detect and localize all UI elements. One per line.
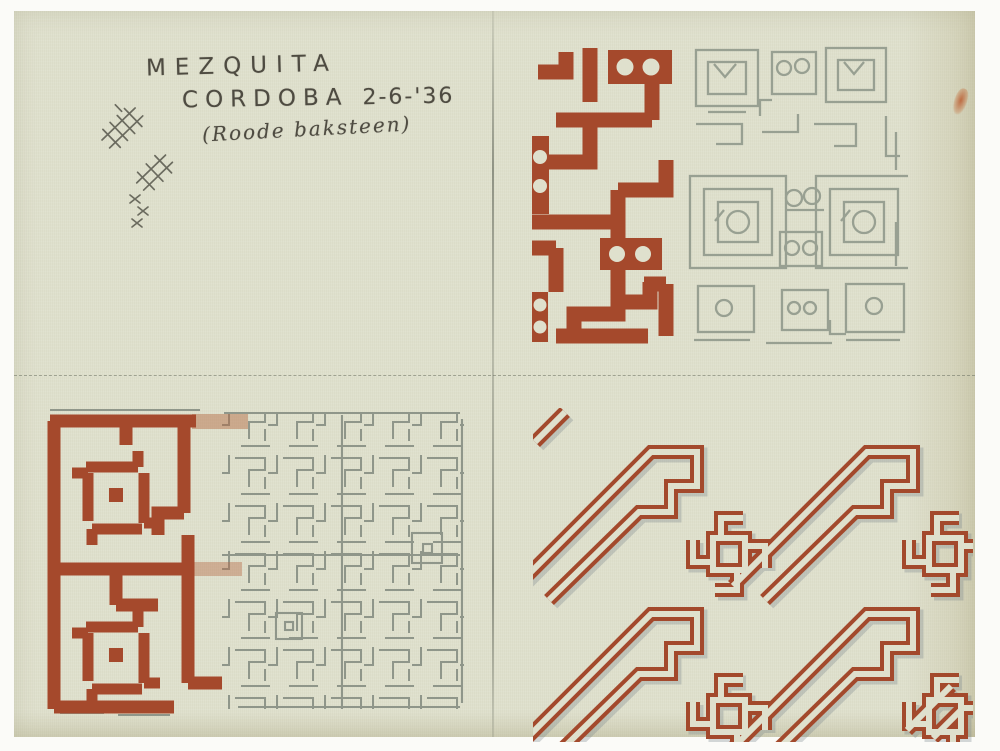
- inscription-date: 2-6-'36: [362, 84, 454, 111]
- inscription-note: (Roode baksteen): [202, 112, 412, 147]
- scanned-sketch-screenshot: { "page": { "inscription": { "title": "M…: [0, 0, 1000, 751]
- inscription-title: MEZQUITA: [146, 50, 338, 81]
- inscription-location-date: CORDOBA2-6-'36: [182, 83, 455, 114]
- top-right-red-portion: [532, 48, 672, 342]
- red-knot-rosette: [72, 611, 160, 705]
- red-knot-rosette: [72, 451, 160, 545]
- pattern-top-right-brick-meander: [530, 40, 908, 352]
- pattern-bottom-right-pinwheel-interlace: [533, 408, 973, 742]
- top-right-pencil-portion: [690, 48, 908, 343]
- bottom-left-red-portion: [50, 414, 248, 709]
- horizontal-fold-line: [14, 375, 975, 376]
- pattern-bottom-left-maze: [40, 405, 472, 723]
- sketchbook-page: MEZQUITA CORDOBA2-6-'36 (Roode baksteen): [14, 11, 975, 737]
- vertical-fold-line: [492, 11, 494, 737]
- tally-crosses: [130, 195, 148, 227]
- tally-ladder-2: [132, 150, 177, 195]
- tally-ladder-1: [91, 97, 148, 153]
- tally-doodle-sketch: [88, 97, 208, 232]
